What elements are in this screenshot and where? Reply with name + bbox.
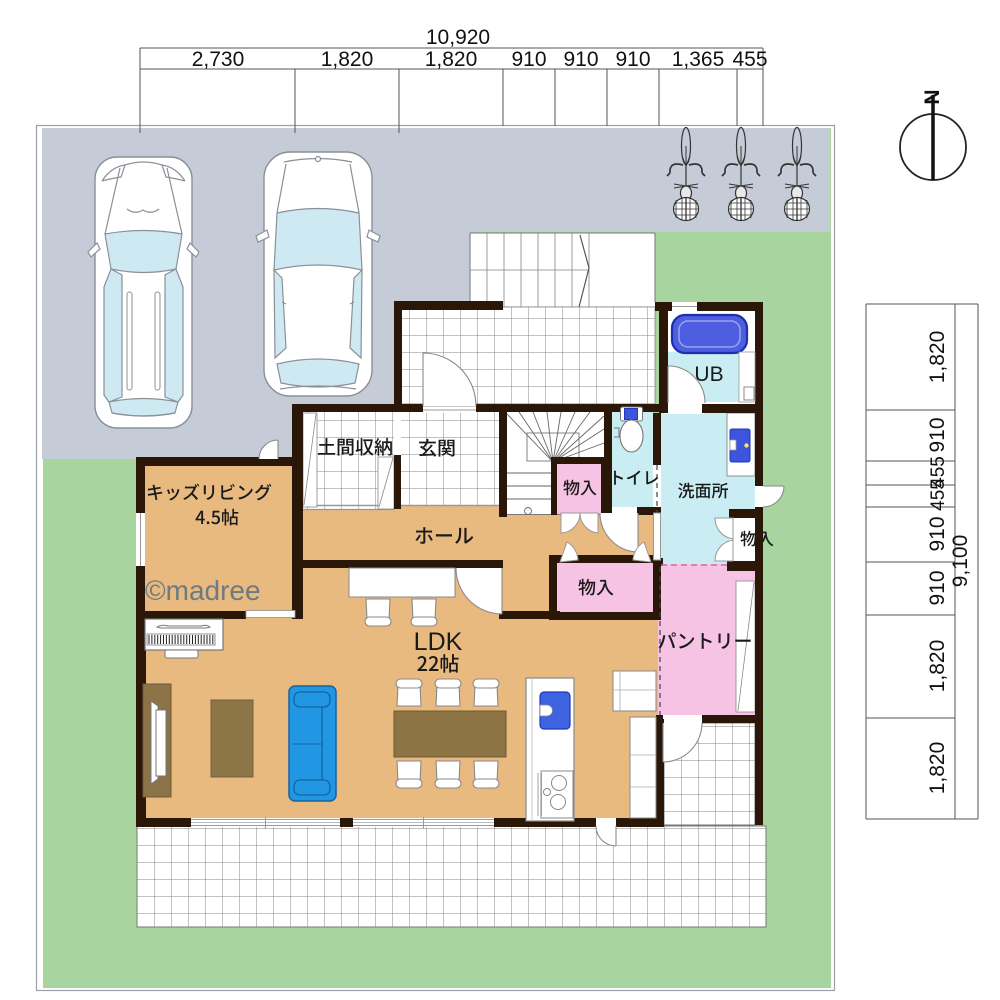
svg-text:455: 455 xyxy=(732,48,767,71)
svg-text:910: 910 xyxy=(511,48,546,71)
svg-text:910: 910 xyxy=(563,48,598,71)
svg-text:©madree: ©madree xyxy=(145,575,261,606)
svg-text:2,730: 2,730 xyxy=(192,48,245,71)
svg-text:910: 910 xyxy=(926,570,949,605)
svg-text:LDK: LDK xyxy=(414,628,463,656)
svg-text:1,820: 1,820 xyxy=(926,742,949,795)
svg-text:N: N xyxy=(921,89,944,104)
svg-text:1,820: 1,820 xyxy=(926,331,949,384)
svg-text:1,820: 1,820 xyxy=(321,48,374,71)
svg-text:UB: UB xyxy=(694,363,723,386)
svg-text:910: 910 xyxy=(926,417,949,452)
svg-text:1,365: 1,365 xyxy=(672,48,725,71)
svg-text:910: 910 xyxy=(615,48,650,71)
svg-text:10,920: 10,920 xyxy=(426,26,490,49)
svg-text:1,820: 1,820 xyxy=(926,640,949,693)
svg-text:455: 455 xyxy=(928,479,949,511)
svg-text:9,100: 9,100 xyxy=(949,535,972,588)
svg-text:910: 910 xyxy=(926,516,949,551)
svg-text:1,820: 1,820 xyxy=(425,48,478,71)
